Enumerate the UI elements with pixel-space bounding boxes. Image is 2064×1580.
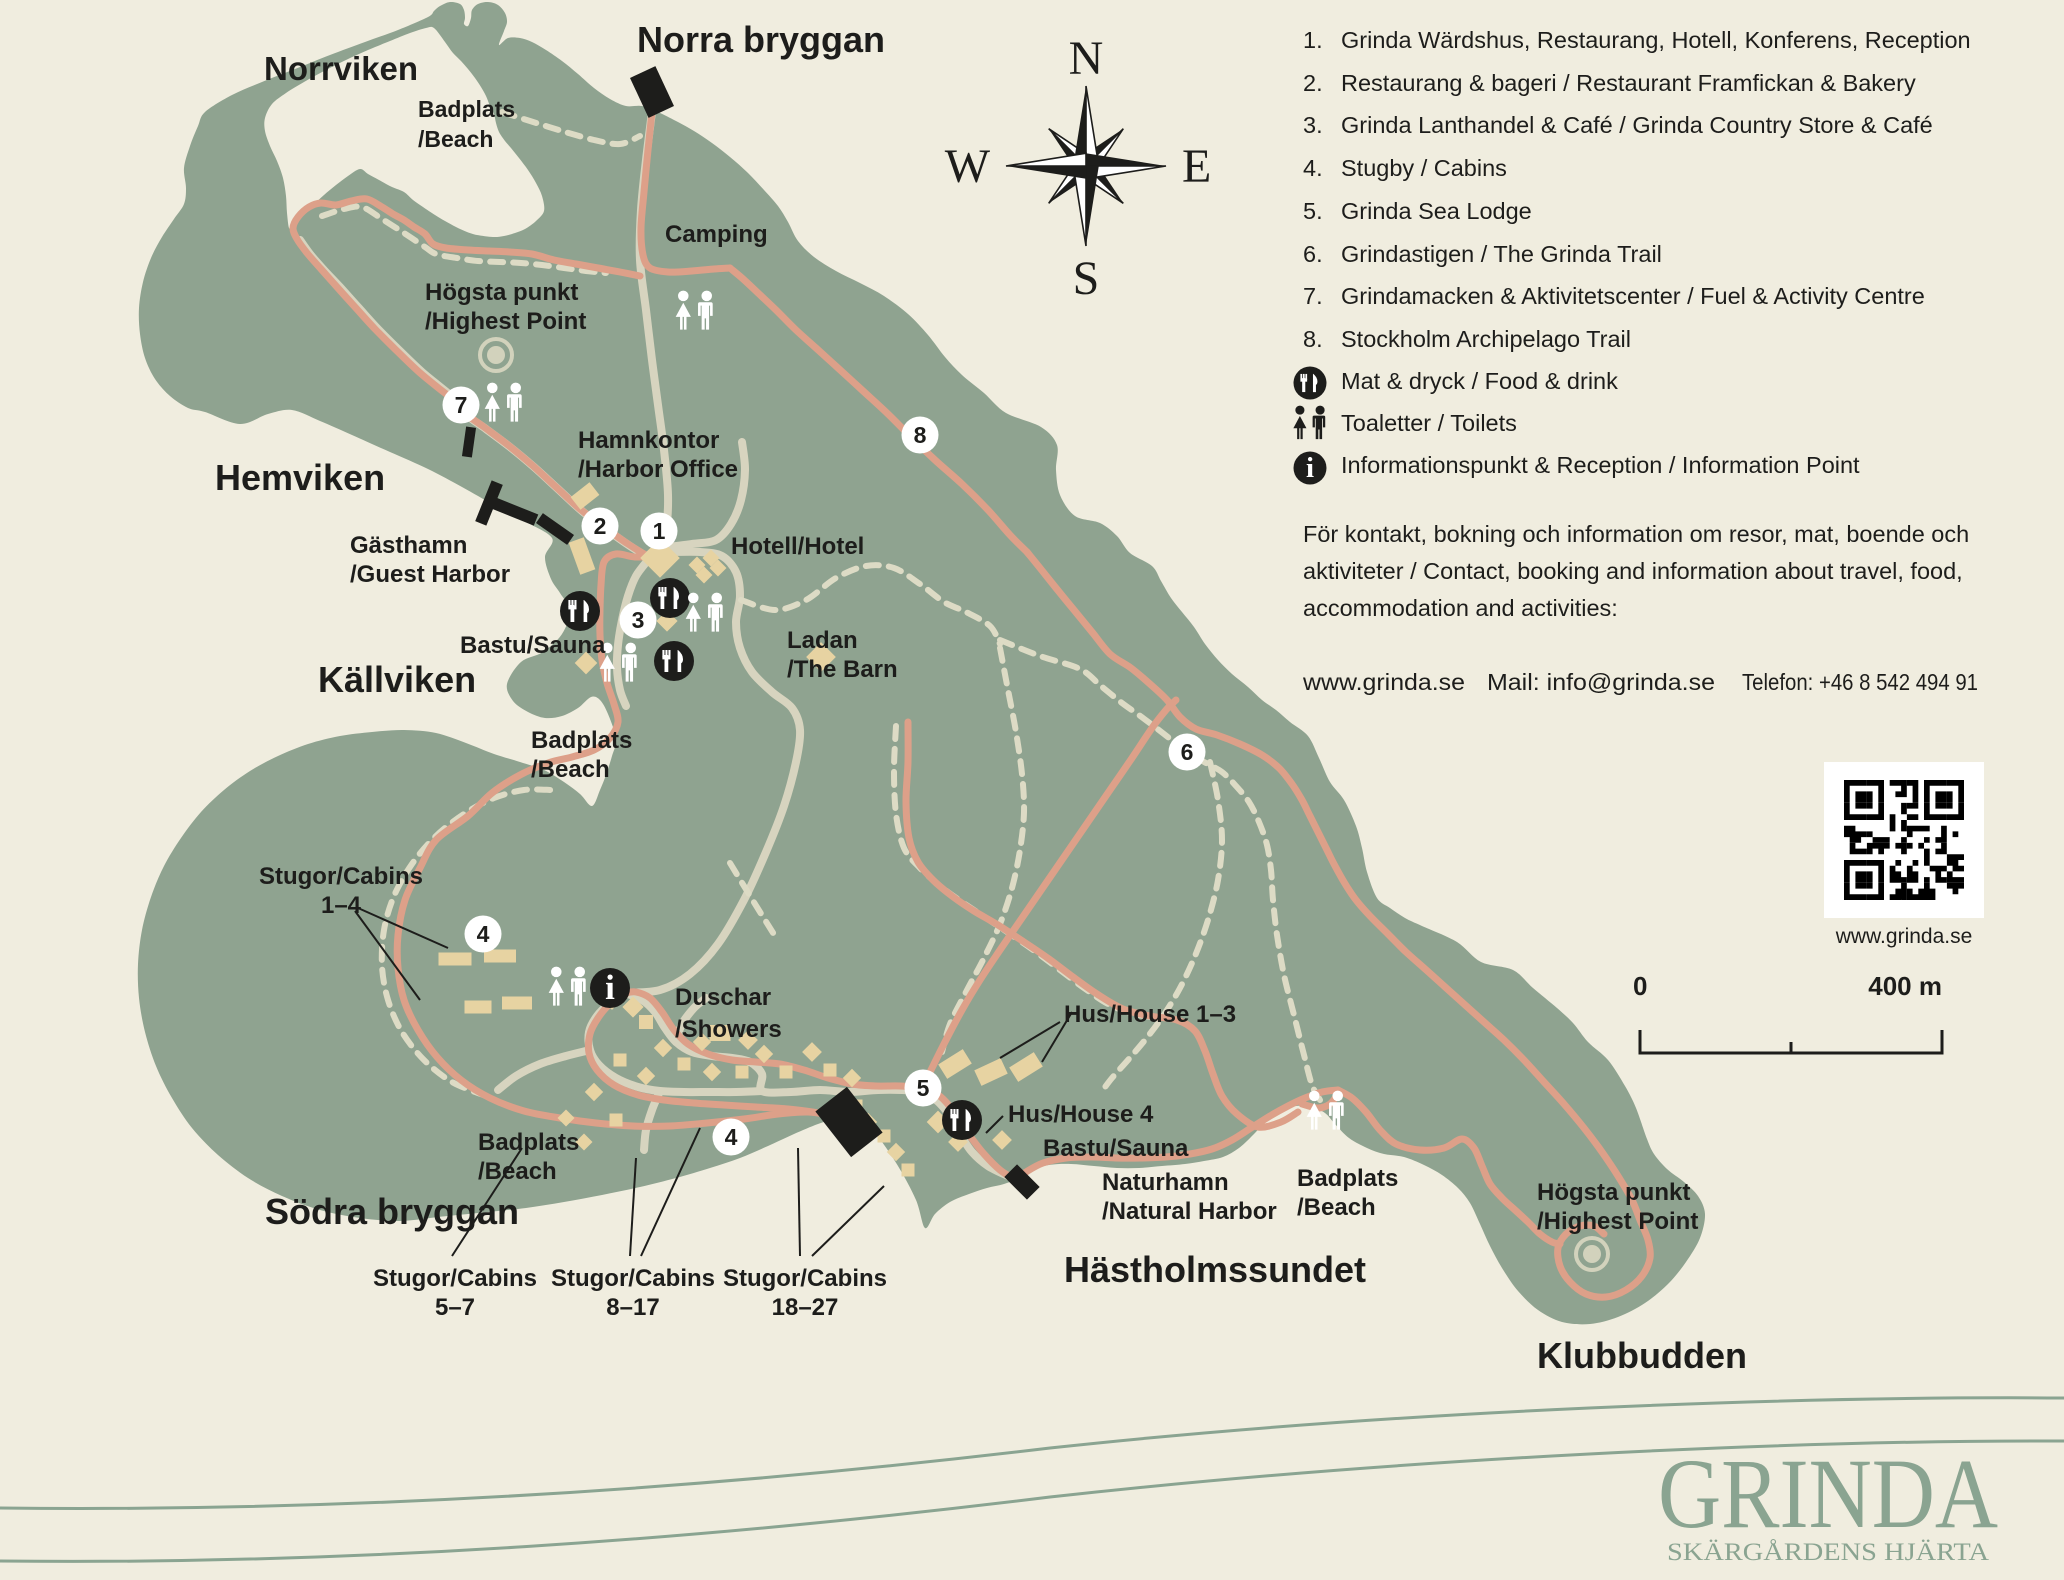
svg-text:8: 8 xyxy=(914,422,927,448)
svg-text:S: S xyxy=(1073,252,1100,305)
svg-text:2: 2 xyxy=(594,513,607,539)
svg-text:Hotell/Hotel: Hotell/Hotel xyxy=(731,533,864,560)
svg-text:Telefon: +46 8 542 494 91: Telefon: +46 8 542 494 91 xyxy=(1742,669,1978,695)
svg-text:3.: 3. xyxy=(1303,112,1323,138)
svg-text:3: 3 xyxy=(632,607,645,633)
svg-text:6.: 6. xyxy=(1303,241,1323,267)
svg-text:4: 4 xyxy=(477,921,490,947)
svg-text:Grindamacken & Aktivitetscente: Grindamacken & Aktivitetscenter / Fuel &… xyxy=(1341,283,1925,309)
svg-text:Södra bryggan: Södra bryggan xyxy=(265,1191,519,1232)
svg-text:GRINDA: GRINDA xyxy=(1658,1438,1998,1549)
svg-text:Hus/House 4: Hus/House 4 xyxy=(1008,1101,1154,1128)
svg-text:Hästholmssundet: Hästholmssundet xyxy=(1064,1249,1366,1290)
svg-text:Grinda Lanthandel & Café / Gri: Grinda Lanthandel & Café / Grinda Countr… xyxy=(1341,112,1933,138)
svg-text:För kontakt, bokning och infor: För kontakt, bokning och information om … xyxy=(1303,521,1969,547)
svg-text:Stockholm Archipelago Trail: Stockholm Archipelago Trail xyxy=(1341,326,1631,352)
svg-text:Grindastigen / The Grinda Trai: Grindastigen / The Grinda Trail xyxy=(1341,241,1662,267)
svg-text:Toaletter / Toilets: Toaletter / Toilets xyxy=(1341,410,1517,436)
svg-text:accommodation and activities:: accommodation and activities: xyxy=(1303,595,1618,621)
svg-text:Hus/House 1–3: Hus/House 1–3 xyxy=(1064,1001,1236,1028)
svg-text:Informationspunkt & Reception: Informationspunkt & Reception / Informat… xyxy=(1341,452,1860,478)
svg-text:8.: 8. xyxy=(1303,326,1323,352)
svg-text:Grinda Wärdshus, Restaurang, H: Grinda Wärdshus, Restaurang, Hotell, Kon… xyxy=(1341,27,1971,53)
svg-text:2.: 2. xyxy=(1303,70,1323,96)
svg-text:Källviken: Källviken xyxy=(318,659,476,700)
svg-text:Bastu/Sauna: Bastu/Sauna xyxy=(1043,1135,1189,1162)
svg-text:Norrviken: Norrviken xyxy=(264,50,418,87)
svg-text:1: 1 xyxy=(653,518,666,544)
svg-text:7: 7 xyxy=(455,392,468,418)
svg-text:5: 5 xyxy=(917,1075,930,1101)
svg-text:Mat & dryck / Food & drink: Mat & dryck / Food & drink xyxy=(1341,368,1618,394)
svg-text:Klubbudden: Klubbudden xyxy=(1537,1335,1747,1376)
svg-text:4.: 4. xyxy=(1303,155,1323,181)
svg-text:5.: 5. xyxy=(1303,198,1323,224)
svg-text:4: 4 xyxy=(725,1124,738,1150)
svg-text:Restaurang & bageri / Restaura: Restaurang & bageri / Restaurant Framfic… xyxy=(1341,70,1916,96)
svg-text:Mail: info@grinda.se: Mail: info@grinda.se xyxy=(1487,669,1715,695)
svg-text:6: 6 xyxy=(1181,739,1194,765)
svg-text:E: E xyxy=(1182,140,1211,193)
svg-text:Stugby / Cabins: Stugby / Cabins xyxy=(1341,155,1507,181)
svg-text:Bastu/Sauna: Bastu/Sauna xyxy=(460,632,606,659)
svg-text:0: 0 xyxy=(1633,971,1647,1001)
svg-text:400 m: 400 m xyxy=(1868,971,1942,1001)
svg-text:i: i xyxy=(605,968,615,1007)
svg-text:www.grinda.se: www.grinda.se xyxy=(1835,925,1973,948)
svg-text:Hemviken: Hemviken xyxy=(215,457,385,498)
svg-text:SKÄRGÅRDENS HJÄRTA: SKÄRGÅRDENS HJÄRTA xyxy=(1667,1539,1989,1566)
svg-text:N: N xyxy=(1069,32,1104,85)
svg-text:i: i xyxy=(1306,452,1314,484)
svg-text:W: W xyxy=(945,140,991,193)
svg-text:Camping: Camping xyxy=(665,221,768,248)
svg-text:7.: 7. xyxy=(1303,283,1323,309)
svg-text:aktiviteter / Contact, booking: aktiviteter / Contact, booking and infor… xyxy=(1303,558,1963,584)
svg-text:www.grinda.se: www.grinda.se xyxy=(1302,669,1465,695)
svg-text:Grinda Sea Lodge: Grinda Sea Lodge xyxy=(1341,198,1532,224)
svg-text:1.: 1. xyxy=(1303,27,1323,53)
svg-text:Norra bryggan: Norra bryggan xyxy=(637,19,885,60)
